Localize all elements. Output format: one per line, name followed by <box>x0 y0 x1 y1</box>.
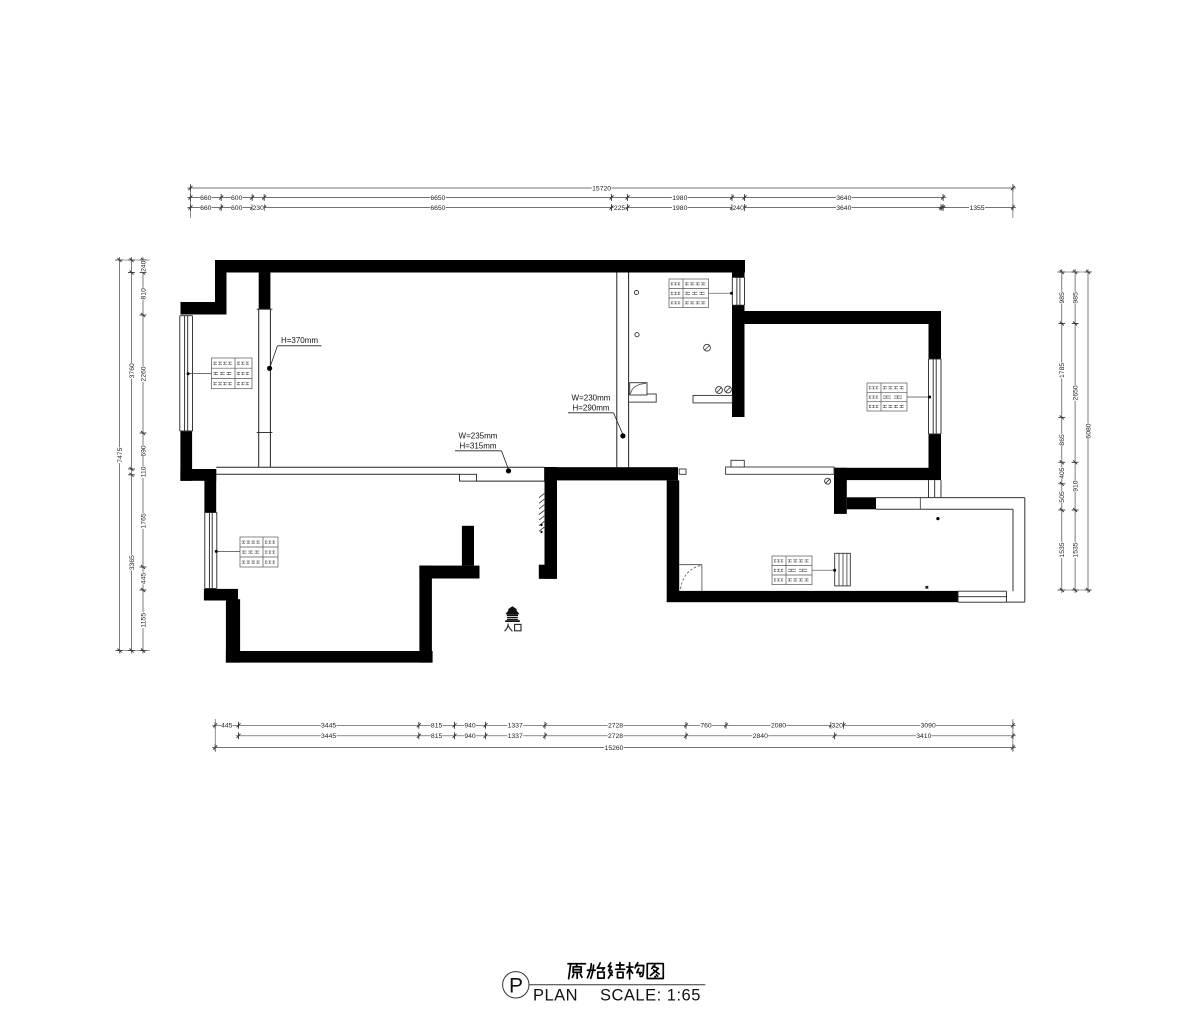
svg-text:SCALE: 1:65: SCALE: 1:65 <box>600 987 701 1005</box>
svg-text:H=290mm: H=290mm <box>572 404 609 413</box>
svg-text:6080: 6080 <box>1085 423 1092 438</box>
svg-text:2650: 2650 <box>1073 385 1080 400</box>
svg-text:2260: 2260 <box>140 366 147 381</box>
svg-text:985: 985 <box>1073 292 1080 304</box>
svg-text:W=235mm: W=235mm <box>459 432 498 441</box>
svg-text:230: 230 <box>253 205 265 212</box>
svg-text:1355: 1355 <box>969 205 984 212</box>
svg-text:1980: 1980 <box>672 205 687 212</box>
svg-text:985: 985 <box>1059 292 1066 304</box>
svg-text:1785: 1785 <box>1059 363 1066 378</box>
svg-text:815: 815 <box>431 723 443 730</box>
svg-text:PLAN: PLAN <box>533 987 578 1005</box>
svg-text:3640: 3640 <box>836 205 851 212</box>
svg-text:660: 660 <box>200 195 212 202</box>
svg-text:2728: 2728 <box>608 723 623 730</box>
svg-text:405: 405 <box>1059 467 1066 479</box>
svg-text:505: 505 <box>1059 491 1066 503</box>
svg-text:1765: 1765 <box>140 513 147 528</box>
svg-text:H=370mm: H=370mm <box>281 336 318 345</box>
svg-text:815: 815 <box>431 733 443 740</box>
svg-text:1980: 1980 <box>672 195 687 202</box>
svg-text:1535: 1535 <box>1073 542 1080 557</box>
svg-text:690: 690 <box>140 445 147 457</box>
svg-text:2080: 2080 <box>771 723 786 730</box>
svg-text:225: 225 <box>614 205 626 212</box>
svg-text:15720: 15720 <box>592 185 611 192</box>
svg-text:320: 320 <box>832 723 844 730</box>
svg-text:1337: 1337 <box>508 733 523 740</box>
svg-text:240: 240 <box>733 205 745 212</box>
svg-text:1337: 1337 <box>508 723 523 730</box>
svg-text:600: 600 <box>231 205 243 212</box>
svg-text:1155: 1155 <box>140 613 147 628</box>
svg-text:940: 940 <box>464 733 476 740</box>
svg-text:15260: 15260 <box>605 745 624 752</box>
svg-text:810: 810 <box>140 288 147 300</box>
svg-text:3445: 3445 <box>321 723 336 730</box>
svg-text:3760: 3760 <box>129 363 136 378</box>
svg-text:865: 865 <box>1059 434 1066 446</box>
svg-text:240: 240 <box>140 260 147 272</box>
svg-text:600: 600 <box>231 195 243 202</box>
svg-text:3365: 3365 <box>129 555 136 570</box>
svg-text:110: 110 <box>140 466 147 477</box>
svg-text:940: 940 <box>464 723 476 730</box>
svg-text:7475: 7475 <box>117 447 124 462</box>
svg-text:3640: 3640 <box>836 195 851 202</box>
svg-text:445: 445 <box>221 723 233 730</box>
svg-text:H=315mm: H=315mm <box>459 442 496 451</box>
svg-text:3090: 3090 <box>921 723 936 730</box>
svg-text:1535: 1535 <box>1059 542 1066 557</box>
svg-text:760: 760 <box>700 723 712 730</box>
svg-text:W=230mm: W=230mm <box>572 394 611 403</box>
svg-text:445: 445 <box>140 573 147 585</box>
svg-text:660: 660 <box>200 205 212 212</box>
svg-text:3445: 3445 <box>321 733 336 740</box>
svg-text:3410: 3410 <box>916 733 931 740</box>
svg-text:2840: 2840 <box>753 733 768 740</box>
svg-text:P: P <box>509 975 523 998</box>
svg-text:6650: 6650 <box>430 205 445 212</box>
svg-text:2728: 2728 <box>608 733 623 740</box>
svg-text:6650: 6650 <box>430 195 445 202</box>
svg-text:910: 910 <box>1073 480 1080 492</box>
